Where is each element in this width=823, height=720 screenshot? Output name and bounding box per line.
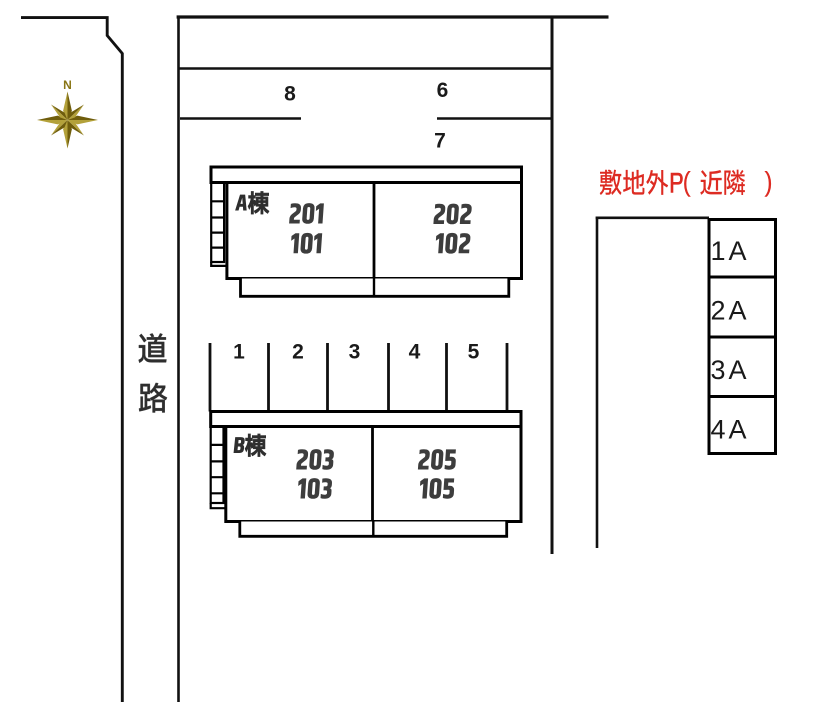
- svg-text:5: 5: [468, 341, 480, 364]
- svg-text:2: 2: [292, 341, 304, 364]
- svg-text:3A: 3A: [711, 355, 750, 385]
- svg-text:2A: 2A: [711, 295, 750, 325]
- svg-text:8: 8: [284, 83, 296, 106]
- svg-text:4A: 4A: [711, 414, 750, 444]
- svg-text:N: N: [63, 78, 72, 92]
- svg-text:7: 7: [434, 130, 446, 153]
- svg-text:3: 3: [349, 341, 361, 364]
- svg-text:1: 1: [233, 341, 245, 364]
- svg-text:1A: 1A: [711, 236, 750, 266]
- svg-text:6: 6: [437, 79, 449, 102]
- svg-text:4: 4: [409, 341, 421, 364]
